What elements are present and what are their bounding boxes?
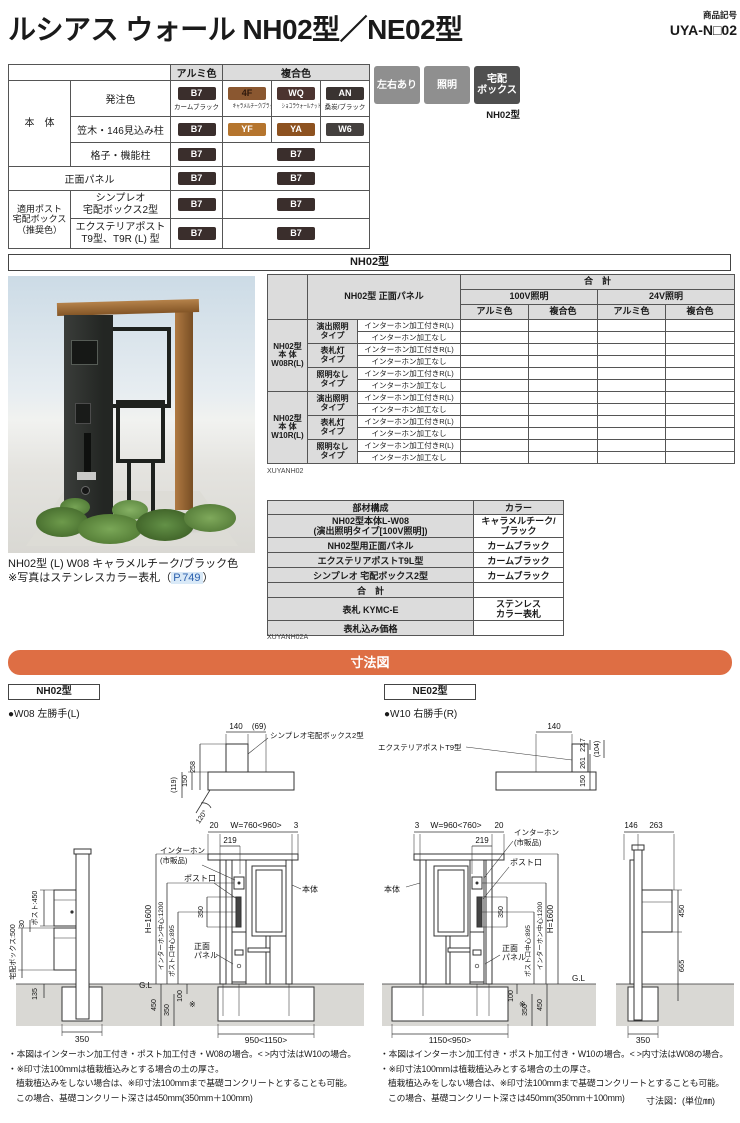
price-header-24v: 24V照明 [598,290,735,305]
price-cell [461,452,529,464]
parts-color [474,583,564,598]
dim-label: ポスト口中心:895 [523,925,532,977]
type-enshutsu: 演出照明 タイプ [308,320,358,344]
color-chip-b7: B7 [178,198,216,211]
price-cell [666,392,735,404]
product-code-block: 商品記号 UYA-N□02 [645,9,737,38]
parts-color: ステンレス カラー表札 [474,598,564,621]
sub-intercom-none: インターホン加工なし [358,428,461,440]
notes-left: ・本図はインターホン加工付き・ポスト加工付き・W08の場合。< >内寸法はW10… [8,1047,380,1105]
type-enshutsu: 演出照明 タイプ [308,392,358,416]
part-label-exterior-post: エクステリアポストT9型 [378,743,462,752]
color-chip-name: カームブラック [171,101,222,111]
sub-intercom-with: インターホン加工付きR(L) [358,344,461,356]
type-hyosatsu: 表札灯 タイプ [308,344,358,368]
parts-row-nameplate: 表札 KYMC-E [268,598,474,621]
badge-model-note: NH02型 [430,107,520,121]
price-cell [461,404,529,416]
price-cell [666,416,735,428]
dim-label: 665 [677,960,686,973]
dim-label: 450 [151,999,158,1011]
price-cell [529,344,598,356]
color-chip-b7: B7 [277,227,315,240]
color-table: アルミ色 複合色 本 体 発注色 B7 カームブラック 4F キャラメルチーク/… [8,64,370,249]
price-cell [598,392,666,404]
note-line: 植栽植込みをしない場合は、※印寸法100mmまで基礎コンクリートとすることも可能… [8,1076,380,1091]
dim-label: 150 [182,775,189,787]
price-cell [598,320,666,332]
color-chip-b7: B7 [178,227,216,240]
chip-cell: YA [272,117,321,143]
top-detail: エクステリアポストT9型 140 22.7 (104) 261 150 [378,722,604,790]
sub-intercom-none: インターホン加工なし [358,404,461,416]
price-cell [461,332,529,344]
photo-knob [81,486,90,495]
dim-label: 3 [294,821,299,830]
note-line: ・本図はインターホン加工付き・ポスト加工付き・W10の場合。< >内寸法はW08… [380,1047,740,1062]
badge-delivery-box: 宅配 ボックス [474,66,520,104]
price-cell [598,428,666,440]
price-table-corner [268,275,308,320]
chip-cell: B7 [223,143,370,167]
price-cell [461,428,529,440]
part-label-intercom: (市販品) [160,855,188,865]
price-cell [666,380,735,392]
nh02-dimension-drawing: ポスト:450 30 宅配ボックス:500 135 350 120° 140 (… [4,714,370,1046]
price-header-alumi: アルミ色 [461,305,529,320]
note-line: ・※印寸法100mmは植栽植込みとする場合の土の厚さ。 [8,1062,380,1077]
dim-label: H=1600 [546,904,555,933]
note-line: この場合、基礎コンクリート深さは450mm(350mm＋100mm) [8,1091,380,1106]
part-label-body: 本体 [302,884,318,894]
product-code: UYA-N□02 [645,22,737,38]
group-w10: NH02型 本 体 W10R(L) [268,392,308,464]
color-chip-4f: 4F [228,87,266,100]
row-label-kasagi: 笠木・146見込み柱 [71,117,171,143]
part-label-post-slot: ポスト口 [184,874,216,883]
type-no-light: 照明なし タイプ [308,440,358,464]
price-cell [461,368,529,380]
dim-label: 140 [547,722,561,731]
photo-frame-upper [108,327,171,408]
photo-caption: NH02型 (L) W08 キャラメルチーク/ブラック色 ※写真はステンレスカラ… [8,557,238,585]
dim-label: 450 [537,999,544,1011]
price-cell [461,344,529,356]
price-cell [461,356,529,368]
part-label-panel: パネル [194,951,218,960]
product-code-label: 商品記号 [645,9,737,21]
dim-label: 261 [580,757,587,769]
photo-intercom [75,403,91,424]
dim-label: 146 [624,821,638,830]
part-label-intercom: インターホン [160,846,205,855]
note-line: 植栽植込みをしない場合は、※印寸法100mmまで基礎コンクリートとすることも可能… [380,1076,740,1091]
parts-header-name: 部材構成 [268,501,474,515]
type-no-light: 照明なし タイプ [308,368,358,392]
row-label-koshi: 格子・機能柱 [71,143,171,167]
color-chip-yf: YF [228,123,266,136]
part-label-delivery-box: シンプレオ宅配ボックス2型 [270,730,364,740]
price-header-fukugo: 複合色 [529,305,598,320]
top-detail: 120° 140 (69) 258 150 (119) シンプレオ宅配ボックス2… [171,722,364,825]
chip-cell: YF [223,117,272,143]
price-cell [598,452,666,464]
part-label-panel: パネル [502,953,526,962]
price-cell [529,440,598,452]
group-body: 本 体 [9,81,71,167]
parts-color: カームブラック [474,553,564,568]
parts-row-total: 合 計 [268,583,474,598]
price-cell [461,380,529,392]
dim-label: 150 [580,775,587,787]
table-code-xuyanh02a: XUYANH02A [267,634,308,641]
price-cell [529,380,598,392]
dim-label: 350 [636,1035,650,1045]
dim-label: ポスト:450 [31,891,39,926]
part-label-body: 本体 [384,884,400,894]
sub-intercom-none: インターホン加工なし [358,356,461,368]
dim-label: 22.7 [580,738,587,752]
sub-intercom-none: インターホン加工なし [358,452,461,464]
price-cell [529,368,598,380]
price-header-100v: 100V照明 [461,290,598,305]
model-box-ne02: NE02型 [384,684,476,700]
price-cell [529,428,598,440]
dim-label: 20 [210,821,219,830]
price-cell [529,404,598,416]
photo-plant [184,504,236,532]
price-cell [666,428,735,440]
color-chip-name: キャラメルチーク/ブラック [233,101,262,110]
dim-label: ※ [189,1000,196,1009]
sub-intercom-none: インターホン加工なし [358,380,461,392]
row-label-panel: 正面パネル [9,167,171,191]
group-post: 適用ポスト 宅配ボックス （推奨色） [9,191,71,249]
caption-text: ） [203,572,214,584]
dim-label-gl: G.L [139,981,152,990]
color-chip-b7: B7 [178,172,216,185]
part-label-panel: 正面 [502,944,518,953]
parts-row-body: NH02型本体L-W08 (演出照明タイプ[100V照明]) [268,515,474,538]
sub-intercom-with: インターホン加工付きR(L) [358,368,461,380]
type-hyosatsu: 表札灯 タイプ [308,416,358,440]
color-chip-b7: B7 [277,148,315,161]
dim-label: 135 [32,988,39,1000]
dim-label: 950<1150> [245,1035,287,1045]
chip-cell: WQ ショコラウォールナット/ブラック [272,81,321,117]
ne02-dimension-drawing: エクステリアポストT9型 140 22.7 (104) 261 150 [376,714,738,1046]
dim-label: (69) [252,722,267,731]
sub-intercom-with: インターホン加工付きR(L) [358,440,461,452]
chip-cell: B7 カームブラック [171,81,223,117]
price-cell [666,368,735,380]
dim-label: 350 [75,1034,89,1044]
sub-intercom-with: インターホン加工付きR(L) [358,392,461,404]
dim-label: 450 [677,905,686,918]
dim-label: 350 [164,1004,171,1016]
chip-cell: B7 [171,191,223,219]
price-cell [598,380,666,392]
parts-header-color: カラー [474,501,564,515]
section-bar-sunpozu: 寸法図 [8,650,732,675]
color-chip-name: ショコラウォールナット/ブラック [282,101,311,110]
price-cell [666,332,735,344]
color-chip-an: AN [326,87,364,100]
color-chip-w6: W6 [326,123,364,136]
chip-cell: AN 桑炭/ブラック [321,81,370,117]
price-cell [666,344,735,356]
price-cell [666,440,735,452]
photo-frame-lower [116,400,165,463]
dim-label: 100 [508,990,515,1002]
product-photo [8,276,255,553]
chip-cell: B7 [223,191,370,219]
chip-cell: B7 [171,167,223,191]
note-line: ・※印寸法100mmは植栽植込みとする場合の土の厚さ。 [380,1062,740,1077]
price-cell [598,368,666,380]
page-link-p749[interactable]: P.749 [171,572,202,584]
dim-label: 3 [415,821,420,830]
dim-label: 140 [229,722,243,731]
section-bar-nh02: NH02型 [8,254,731,271]
part-label-intercom: (市販品) [514,837,542,847]
parts-row-panel: NH02型用正面パネル [268,538,474,553]
dim-label: インターホン中心:1200 [535,901,544,970]
price-cell [529,356,598,368]
price-cell [666,320,735,332]
parts-table: 部材構成 カラー NH02型本体L-W08 (演出照明タイプ[100V照明])キ… [267,500,564,636]
dim-label: 宅配ボックス:500 [8,924,17,980]
price-cell [461,416,529,428]
dim-label: 258 [190,761,197,773]
caption-text: ※写真はステンレスカラー表札（ [8,572,171,584]
price-cell [598,356,666,368]
price-table-title: NH02型 正面パネル [308,275,461,320]
part-label-intercom: インターホン [514,828,559,837]
unit-note: 寸法図：(単位㎜) [646,1094,715,1107]
chip-cell: B7 [171,117,223,143]
sub-intercom-with: インターホン加工付きR(L) [358,320,461,332]
price-cell [598,404,666,416]
price-cell [666,356,735,368]
price-cell [666,452,735,464]
price-cell [666,404,735,416]
dim-label: (104) [594,741,601,757]
dim-label: 20 [495,821,504,830]
dim-label: インターホン中心:1200 [156,901,165,970]
parts-color: カームブラック [474,538,564,553]
note-line: ・本図はインターホン加工付き・ポスト加工付き・W08の場合。< >内寸法はW10… [8,1047,380,1062]
parts-row-post: エクステリアポストT9L型 [268,553,474,568]
dim-label: W=760<960> [230,820,281,830]
price-cell [461,440,529,452]
dim-label-gl: G.L [572,974,585,983]
front-elevation: 20 W=760<960> 3 219 インターホン (市販品) ポスト口 本体… [139,820,318,1045]
row-label-order: 発注色 [71,81,171,117]
price-cell [461,320,529,332]
dim-label: ポスト口中心:895 [167,925,176,977]
dim-label: 219 [223,836,237,845]
col-header-alumi: アルミ色 [171,65,223,81]
price-cell [529,332,598,344]
photo-wood-post [175,309,193,510]
photo-caption-line1: NH02型 (L) W08 キャラメルチーク/ブラック色 [8,557,238,571]
price-cell [529,392,598,404]
feature-badges: 左右あり 照明 宅配 ボックス [374,66,520,104]
dim-label: (119) [171,777,178,793]
dim-label: 120° [194,809,209,826]
color-chip-b7: B7 [277,198,315,211]
price-cell [529,416,598,428]
row-label-simpleo: シンプレオ 宅配ボックス2型 [71,191,171,219]
part-label-panel: 正面 [194,942,210,951]
chip-cell: B7 [171,143,223,167]
group-w08: NH02型 本 体 W08R(L) [268,320,308,392]
price-cell [529,320,598,332]
dim-label: 263 [649,821,663,830]
color-chip-b7: B7 [277,172,315,185]
parts-row-box: シンプレオ 宅配ボックス2型 [268,568,474,583]
chip-cell: W6 [321,117,370,143]
color-chip-ya: YA [277,123,315,136]
parts-color: カームブラック [474,568,564,583]
price-header-fukugo: 複合色 [666,305,735,320]
price-table: NH02型 正面パネル 合 計 100V照明 24V照明 アルミ色 複合色 アル… [267,274,735,464]
parts-color [474,621,564,636]
chip-cell: B7 [171,219,223,249]
price-cell [598,440,666,452]
price-header-total: 合 計 [461,275,735,290]
color-chip-b7: B7 [178,123,216,136]
dim-label: 350 [522,1004,529,1016]
price-cell [461,392,529,404]
color-chip-name: 桑炭/ブラック [321,101,369,111]
photo-plant [78,514,142,544]
dim-label: 219 [475,836,489,845]
badge-left-right: 左右あり [374,66,420,104]
photo-caption-line2: ※写真はステンレスカラー表札（P.749） [8,571,238,585]
color-chip-wq: WQ [277,87,315,100]
chip-cell: 4F キャラメルチーク/ブラック [223,81,272,117]
table-code-xuyanh02: XUYANH02 [267,468,303,475]
dim-label: 1150<950> [429,1035,471,1045]
photo-frame-leg [151,462,155,514]
photo-post-dial [77,472,96,480]
dim-label: 30 [19,920,26,928]
photo-nameplate [71,340,98,365]
parts-color: キャラメルチーク/ ブラック [474,515,564,538]
price-cell [598,416,666,428]
dim-label: W=960<760> [430,820,481,830]
chip-cell: B7 [223,167,370,191]
dim-label: 100 [177,990,184,1002]
price-cell [529,452,598,464]
col-header-fukugo: 複合色 [223,65,370,81]
page-title: ルシアス ウォール NH02型／NE02型 [8,8,463,48]
color-chip-b7: B7 [178,87,216,100]
color-chip-b7: B7 [178,148,216,161]
price-cell [598,344,666,356]
chip-cell: B7 [223,219,370,249]
price-cell [598,332,666,344]
sub-intercom-with: インターホン加工付きR(L) [358,416,461,428]
dim-label: H=1600 [144,904,153,933]
price-header-alumi: アルミ色 [598,305,666,320]
badge-lighting: 照明 [424,66,470,104]
part-label-post-slot: ポスト口 [510,858,542,867]
model-box-nh02: NH02型 [8,684,100,700]
catalog-page: ルシアス ウォール NH02型／NE02型 商品記号 UYA-N□02 アルミ色… [0,0,740,1123]
row-label-exterior: エクステリアポスト T9型、T9R (L) 型 [71,219,171,249]
color-table-corner [9,65,171,81]
sub-intercom-none: インターホン加工なし [358,332,461,344]
